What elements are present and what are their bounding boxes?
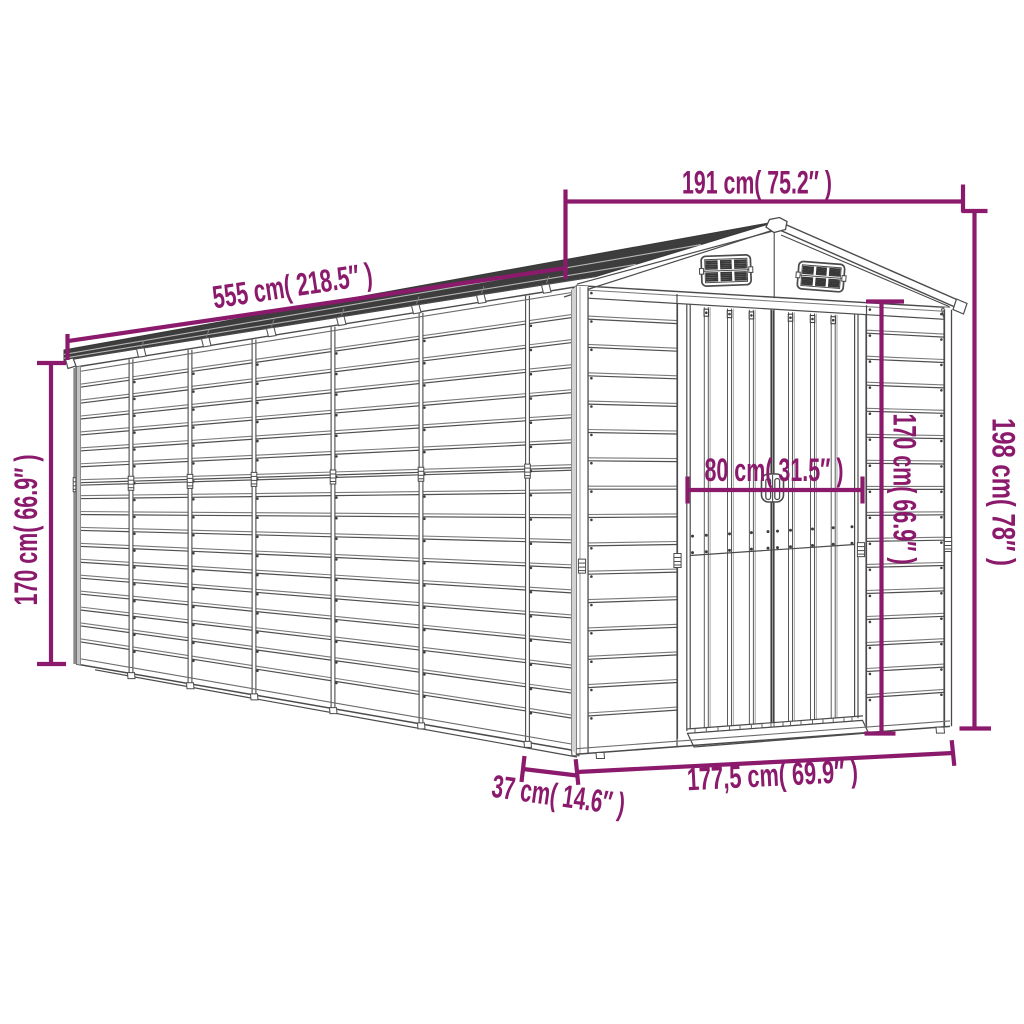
svg-text:170 cm( 66.9″ ): 170 cm( 66.9″ ) xyxy=(8,455,44,606)
svg-text:191 cm( 75.2″ ): 191 cm( 75.2″ ) xyxy=(682,165,832,201)
svg-text:198 cm( 78″ ): 198 cm( 78″ ) xyxy=(986,418,1022,566)
svg-text:80 cm( 31.5″ ): 80 cm( 31.5″ ) xyxy=(705,452,844,488)
svg-text:170 cm( 66.9″ ): 170 cm( 66.9″ ) xyxy=(887,414,923,565)
